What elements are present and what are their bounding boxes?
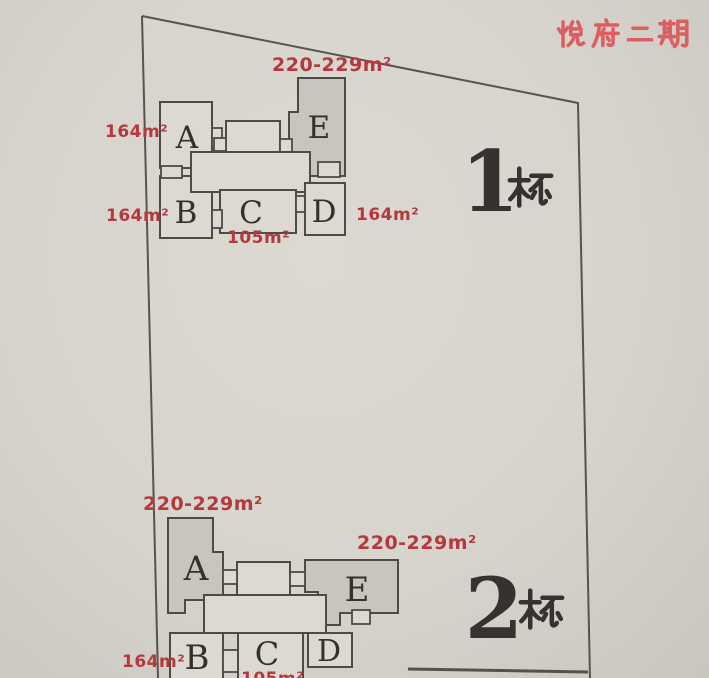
area-label: 220-229m² — [357, 532, 477, 554]
unit-label: E — [345, 570, 370, 610]
building-1-footprint: A B C D E 220-229m² 164m² 164m² 105m² 16… — [105, 54, 419, 248]
connector-block — [214, 138, 226, 151]
area-label: 164m² — [106, 206, 169, 226]
building-2-footprint: A B C D E 220-229m² 220-229m² 164m² 105m… — [122, 493, 477, 678]
connector-block — [290, 572, 305, 586]
core-main-building-1 — [191, 152, 310, 192]
area-label: 105m² — [241, 669, 304, 678]
unit-label: A — [175, 120, 199, 156]
connector-block — [223, 570, 237, 584]
building-1-name: 1 — [461, 132, 551, 231]
unit-label: E — [308, 110, 331, 146]
building-2-number: 2 — [465, 559, 523, 658]
area-label: 164m² — [122, 652, 185, 672]
connector-block — [318, 162, 340, 177]
unit-label: C — [255, 635, 279, 673]
unit-label: A — [183, 549, 209, 589]
bottom-road-line — [408, 669, 588, 672]
core-main-building-2 — [204, 595, 326, 633]
connector-block — [161, 166, 182, 178]
connector-block — [352, 610, 370, 624]
area-label: 220-229m² — [272, 54, 392, 76]
building-2-name: 2 — [465, 559, 562, 658]
unit-label: D — [317, 634, 341, 669]
building-2-suffix-glyph — [521, 591, 562, 628]
area-label: 164m² — [105, 122, 168, 142]
unit-label: D — [312, 194, 337, 230]
connector-block — [280, 139, 292, 152]
core-upper-building-1 — [226, 121, 280, 156]
core-upper-building-2 — [237, 562, 290, 595]
connector-block — [223, 650, 238, 672]
area-label: 105m² — [227, 228, 290, 248]
unit-label: C — [239, 195, 263, 231]
unit-label: B — [175, 195, 198, 231]
area-label: 164m² — [356, 205, 419, 225]
connector-block — [212, 210, 222, 228]
unit-label: B — [185, 638, 210, 678]
site-plan-canvas: A B C D E 220-229m² 164m² 164m² 105m² 16… — [0, 0, 709, 678]
area-label: 220-229m² — [143, 493, 263, 515]
page-title — [559, 20, 687, 47]
